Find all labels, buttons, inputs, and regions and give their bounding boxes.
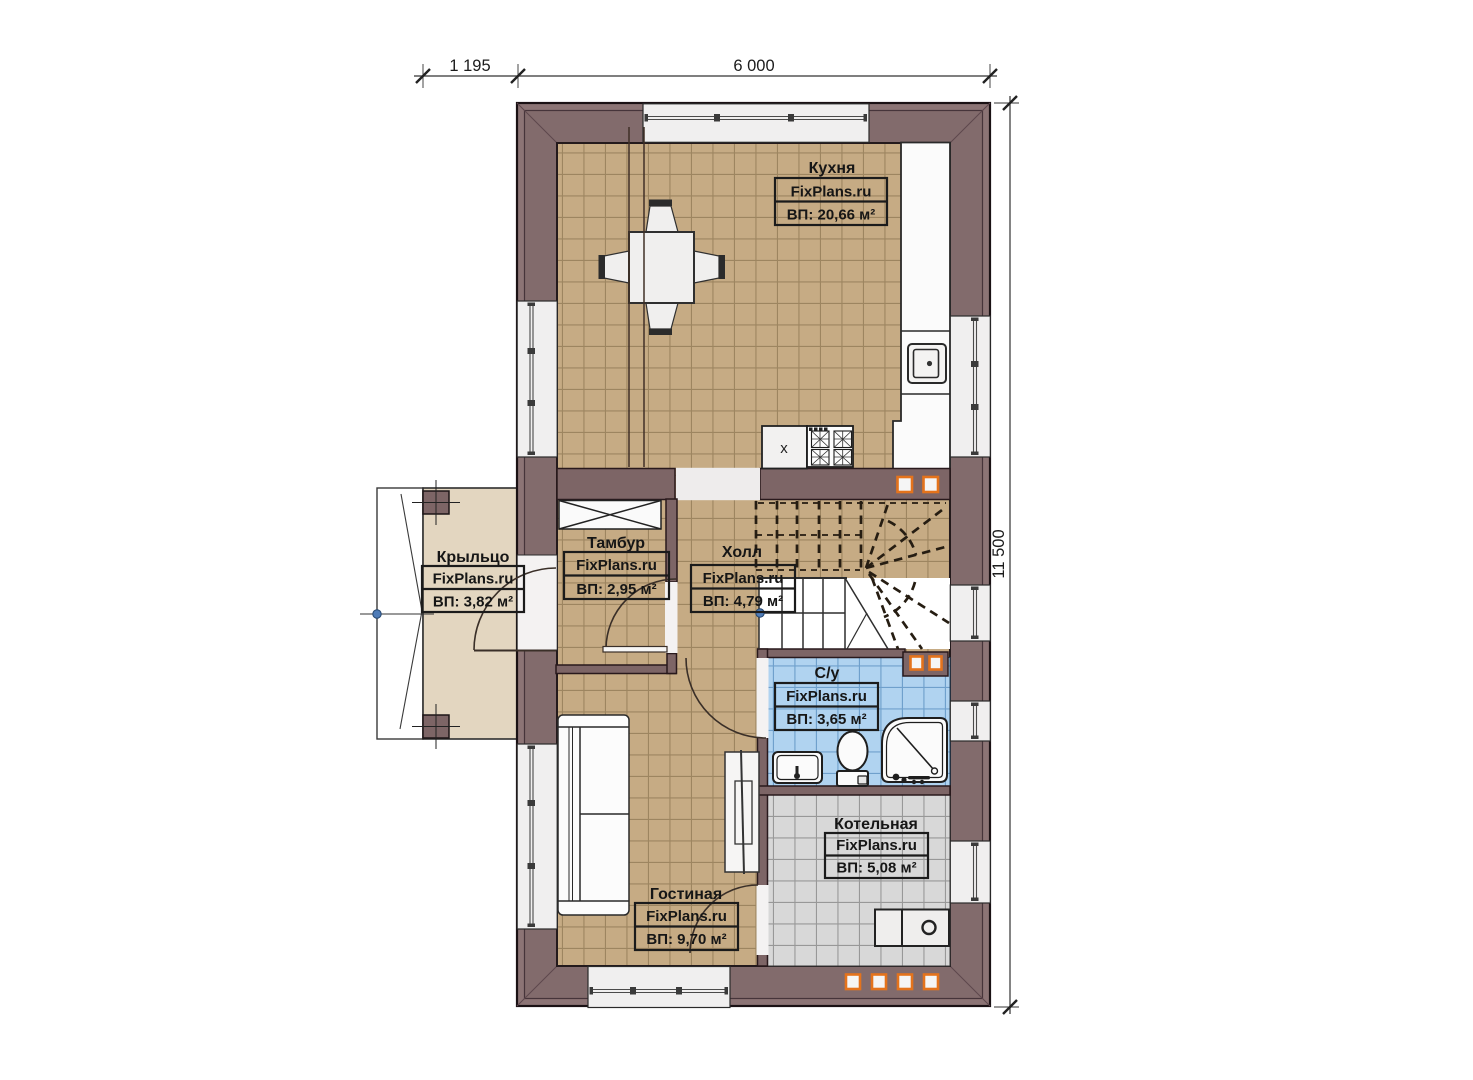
svg-text:FixPlans.ru: FixPlans.ru	[836, 837, 917, 854]
svg-text:FixPlans.ru: FixPlans.ru	[791, 184, 872, 201]
svg-text:FixPlans.ru: FixPlans.ru	[703, 570, 784, 587]
svg-text:x: x	[780, 440, 788, 457]
svg-text:Холл: Холл	[722, 544, 762, 561]
svg-text:ВП: 3,82 м²: ВП: 3,82 м²	[433, 594, 513, 611]
svg-text:6 000: 6 000	[733, 57, 774, 75]
svg-text:ВП: 2,95 м²: ВП: 2,95 м²	[576, 581, 656, 598]
svg-text:ВП: 3,65 м²: ВП: 3,65 м²	[786, 711, 866, 728]
svg-text:ВП: 4,79 м²: ВП: 4,79 м²	[703, 593, 783, 610]
svg-text:Гостиная: Гостиная	[650, 886, 722, 903]
svg-text:FixPlans.ru: FixPlans.ru	[786, 688, 867, 705]
svg-text:FixPlans.ru: FixPlans.ru	[646, 908, 727, 925]
svg-text:Тамбур: Тамбур	[587, 535, 645, 552]
svg-text:ВП: 9,70 м²: ВП: 9,70 м²	[646, 931, 726, 948]
svg-text:FixPlans.ru: FixPlans.ru	[576, 557, 657, 574]
svg-text:С/у: С/у	[815, 665, 840, 682]
svg-text:ВП: 5,08 м²: ВП: 5,08 м²	[836, 860, 916, 877]
svg-text:Котельная: Котельная	[834, 816, 918, 833]
svg-text:ВП: 20,66 м²: ВП: 20,66 м²	[787, 207, 876, 224]
svg-text:11 500: 11 500	[990, 529, 1008, 578]
svg-text:1 195: 1 195	[449, 57, 490, 75]
svg-text:FixPlans.ru: FixPlans.ru	[433, 571, 514, 588]
svg-text:Кухня: Кухня	[809, 160, 856, 177]
svg-text:Крыльцо: Крыльцо	[437, 549, 510, 566]
